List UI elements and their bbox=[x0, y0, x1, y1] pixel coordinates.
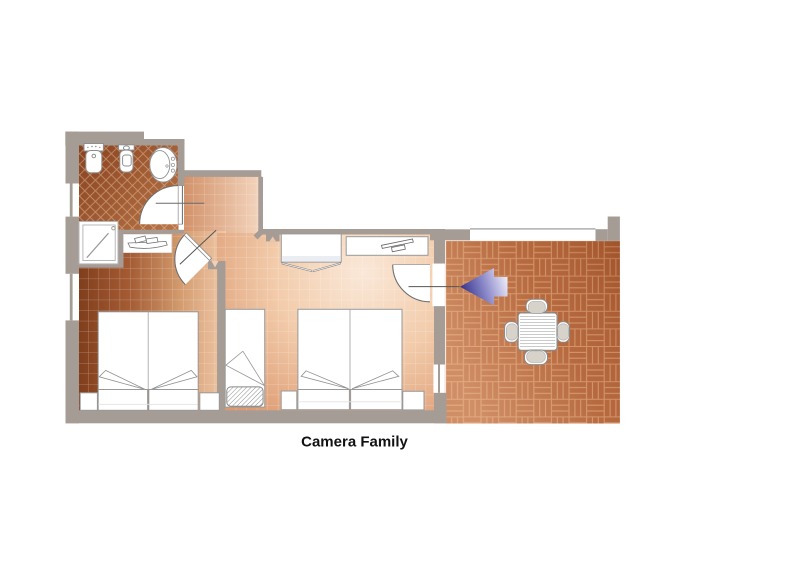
svg-text:Camera Family: Camera Family bbox=[301, 434, 408, 451]
